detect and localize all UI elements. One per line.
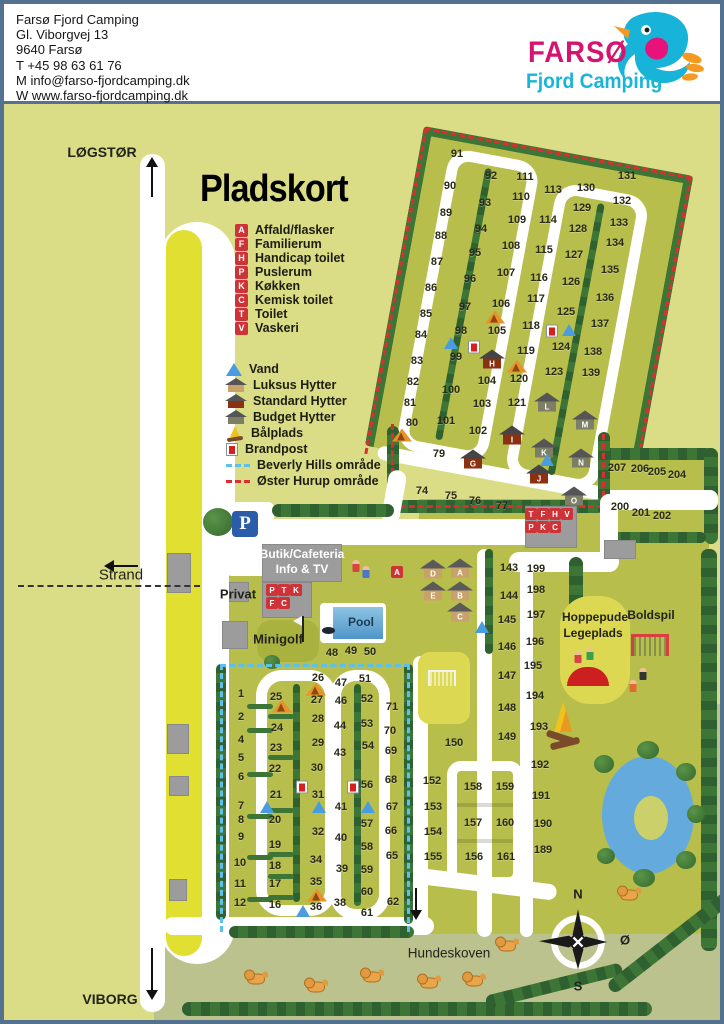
legend-item-T: TToilet (235, 307, 345, 321)
pitch-66: 66 (385, 825, 397, 837)
pitch-34: 34 (310, 854, 322, 866)
pitch-24: 24 (271, 722, 283, 734)
budget-hut-roof-icon (572, 411, 598, 420)
map-title: Pladskort (200, 168, 348, 211)
pitch-128: 128 (569, 223, 587, 235)
pitch-158: 158 (464, 781, 482, 793)
kid-figure (353, 560, 360, 572)
pitch-147: 147 (498, 670, 516, 682)
pitch-138: 138 (584, 346, 602, 358)
hut-letter: B (451, 591, 469, 601)
pitch-28: 28 (312, 713, 324, 725)
pitch-97: 97 (459, 301, 471, 313)
logstor-arrow (146, 157, 158, 197)
standard-hut-roof-icon (479, 350, 505, 359)
pitch-114: 114 (539, 214, 557, 226)
pitch-29: 29 (312, 737, 324, 749)
pitch-136: 136 (596, 292, 614, 304)
legend-label: Kemisk toilet (255, 293, 333, 307)
pitch-117: 117 (527, 293, 545, 305)
pitch-109: 109 (508, 214, 526, 226)
butik-label-line1: Butik/Cafeteria (260, 547, 345, 561)
pitch-23: 23 (270, 742, 282, 754)
compass-south-label: S (574, 979, 583, 994)
pitch-2: 2 (238, 711, 244, 723)
arrow-down-icon (410, 910, 422, 920)
facility-letter-K: K (290, 584, 302, 596)
hut-G: G (461, 450, 485, 469)
pitch-202: 202 (653, 510, 671, 522)
tree-icon (676, 763, 696, 781)
pitch-192: 192 (531, 759, 549, 771)
pitch-118: 118 (522, 320, 540, 332)
pitch-32: 32 (312, 826, 324, 838)
legend-label: Familierum (255, 237, 322, 251)
hut-letter: I (503, 435, 521, 445)
pitch-107: 107 (497, 267, 515, 279)
pitch-67: 67 (386, 801, 398, 813)
pitch-21: 21 (270, 789, 282, 801)
vand-icon (540, 454, 554, 466)
football-goal-icon (428, 670, 456, 686)
football-field (418, 652, 470, 724)
hundeskoven-label: Hundeskoven (408, 946, 491, 961)
whale-icon (322, 627, 335, 634)
pitch-22: 22 (269, 763, 281, 775)
pitch-99: 99 (450, 351, 462, 363)
facility-letter-A: A (391, 566, 403, 578)
vand-icon (444, 337, 458, 349)
minigolf-label: Minigolf (253, 632, 303, 647)
legend-label: Standard Hytter (253, 394, 347, 408)
legend-item-fire: Bålplads (226, 425, 381, 441)
luksus-hut-roof-icon (420, 582, 446, 591)
standard-hut-icon (226, 394, 246, 408)
hedge-stub (247, 704, 273, 709)
budget-hut-roof-icon (561, 487, 587, 496)
legend-item-H: HHandicap toilet (235, 251, 345, 265)
hedge-stub (247, 728, 273, 733)
legend-item-hut-standard: Standard Hytter (226, 393, 381, 409)
header-address-line: Farsø Fjord Camping (16, 12, 190, 27)
pitch-19: 19 (269, 839, 281, 851)
pitch-25: 25 (270, 691, 282, 703)
facility-letter-V: V (561, 508, 573, 520)
legend-item-V: VVaskeri (235, 321, 345, 335)
strip-building (167, 724, 189, 754)
dog-icon (247, 974, 265, 985)
tree-icon (264, 655, 280, 669)
strip-building (169, 776, 189, 796)
facility-letter-T: T (525, 508, 537, 520)
pitch-75: 75 (445, 490, 457, 502)
pitch-82: 82 (407, 376, 419, 388)
hedge-south-1 (229, 926, 414, 938)
pitch-65: 65 (386, 850, 398, 862)
pitch-17: 17 (269, 878, 281, 890)
pitch-134: 134 (606, 237, 624, 249)
pitch-121: 121 (508, 397, 526, 409)
facility-letter-T: T (278, 584, 290, 596)
pitch-31: 31 (312, 789, 324, 801)
privat-label: Privat (220, 587, 256, 602)
pitch-98: 98 (455, 325, 467, 337)
pitch-132: 132 (613, 195, 631, 207)
pitch-47: 47 (335, 677, 347, 689)
pitch-76: 76 (469, 495, 481, 507)
pitch-148: 148 (498, 702, 516, 714)
legend-label: Brandpost (245, 442, 308, 456)
pitch-93: 93 (479, 197, 491, 209)
dog-icon (620, 890, 638, 901)
vand-icon (296, 905, 310, 917)
hut-H: H (480, 350, 504, 369)
legend-item-dash-red: Øster Hurup område (226, 473, 381, 489)
vand-icon (475, 621, 489, 633)
pitch-9: 9 (238, 831, 244, 843)
pitch-5: 5 (238, 752, 244, 764)
hut-I: I (500, 426, 524, 445)
kid-figure (630, 680, 637, 692)
pitch-194: 194 (526, 690, 544, 702)
pitch-77: 77 (496, 500, 508, 512)
pitch-46: 46 (335, 695, 347, 707)
luksus-hut-roof-icon (447, 582, 473, 591)
pitch-116: 116 (530, 272, 548, 284)
facility-letter-C: C (549, 521, 561, 533)
pitch-41: 41 (335, 801, 347, 813)
pitch-56: 56 (361, 779, 373, 791)
facility-letter-C: C (278, 597, 290, 609)
legend-letter-badge: P (235, 266, 248, 279)
strand-arrow (104, 560, 138, 572)
hedge-200s-top (602, 448, 716, 460)
luksus-hut-roof-icon (420, 560, 446, 569)
tree-icon (597, 848, 615, 864)
tree-icon (594, 755, 614, 773)
grid-separator (457, 839, 513, 843)
privat-building-2 (222, 621, 248, 649)
header-address-line: M info@farso-fjordcamping.dk (16, 73, 190, 88)
outbuilding (604, 540, 636, 559)
hut-letter: M (576, 420, 594, 430)
map-canvas: P N Ø S Pladskort LØGSTØR (4, 4, 720, 1020)
pitch-206: 206 (631, 463, 649, 475)
pitch-96: 96 (464, 273, 476, 285)
tent-icon (307, 889, 327, 902)
legend-item-dash-blue: Beverly Hills område (226, 457, 381, 473)
pitch-26: 26 (312, 672, 324, 684)
pitch-95: 95 (469, 247, 481, 259)
hedge-beverly-left (216, 664, 226, 920)
header-address-line: W www.farso-fjordcamping.dk (16, 88, 190, 103)
pitch-152: 152 (423, 775, 441, 787)
pitch-137: 137 (591, 318, 609, 330)
pitch-84: 84 (415, 329, 427, 341)
campsite-map-page: P N Ø S Pladskort LØGSTØR (0, 0, 724, 1024)
pitch-61: 61 (361, 907, 373, 919)
pitch-103: 103 (473, 398, 491, 410)
hut-letter: L (538, 402, 556, 412)
legend-label: Vand (249, 362, 279, 376)
hut-letter: D (424, 569, 442, 579)
hut-letter: G (464, 459, 482, 469)
arrow-up-icon (146, 157, 158, 167)
pitch-144: 144 (500, 590, 518, 602)
pitch-160: 160 (496, 817, 514, 829)
pitch-51: 51 (359, 673, 371, 685)
budget-hut-icon (226, 410, 246, 424)
pitch-71: 71 (386, 701, 398, 713)
pitch-18: 18 (269, 860, 281, 872)
median-strip (166, 230, 202, 956)
hut-letter: A (451, 568, 469, 578)
hedge-hut-column (485, 549, 493, 654)
legend-letter-badge: A (235, 224, 248, 237)
legend-label: Budget Hytter (253, 410, 336, 424)
pitch-161: 161 (497, 851, 515, 863)
header-address-line: Gl. Viborgvej 13 (16, 27, 190, 42)
strip-building (167, 553, 191, 593)
facility-letter-P: P (266, 584, 278, 596)
hedge-stub (268, 852, 294, 857)
pitch-108: 108 (502, 240, 520, 252)
road-label-logstor: LØGSTØR (67, 144, 136, 160)
pool-label: Pool (348, 615, 374, 629)
pitch-7: 7 (238, 800, 244, 812)
vand-icon (562, 324, 576, 336)
pitch-52: 52 (361, 693, 373, 705)
pitch-79: 79 (433, 448, 445, 460)
pitch-146: 146 (498, 641, 516, 653)
kid-figure (575, 651, 582, 663)
pitch-48: 48 (326, 647, 338, 659)
pitch-205: 205 (648, 466, 666, 478)
compass-rose (538, 902, 618, 982)
dog-icon (498, 941, 516, 952)
pitch-10: 10 (234, 857, 246, 869)
hut-E: E (421, 582, 445, 601)
legend-item-A: AAffald/flasker (235, 223, 345, 237)
legend-letter-badge: H (235, 252, 248, 265)
hut-L: L (535, 393, 559, 412)
pitch-101: 101 (437, 415, 455, 427)
blue-dashed-line-icon (226, 464, 250, 467)
pitch-87: 87 (431, 256, 443, 268)
pitch-53: 53 (361, 718, 373, 730)
hut-B: B (448, 582, 472, 601)
pitch-74: 74 (416, 485, 428, 497)
fire-hydrant-icon (226, 443, 238, 456)
butik-label-line2: Info & TV (276, 562, 329, 576)
pitch-115: 115 (535, 244, 553, 256)
hundeskoven-arrow (410, 888, 422, 920)
legend-item-K: KKøkken (235, 279, 345, 293)
luksus-hut-icon (226, 378, 246, 392)
facility-letter-P: P (525, 521, 537, 533)
hoppepude-label-line2: Legeplads (563, 626, 622, 640)
brandpost-icon (546, 325, 558, 338)
pitch-83: 83 (411, 355, 423, 367)
viborg-arrow (146, 948, 158, 1000)
legend-item-C: CKemisk toilet (235, 293, 345, 307)
header-address-line: T +45 98 63 61 76 (16, 58, 190, 73)
pitch-157: 157 (464, 817, 482, 829)
hut-C: C (448, 603, 472, 622)
pitch-36: 36 (310, 901, 322, 913)
pitch-153: 153 (424, 801, 442, 813)
hedge-far-right (701, 549, 717, 951)
pitch-60: 60 (361, 886, 373, 898)
tree-icon (637, 741, 659, 759)
logo-subtitle: Fjord Camping (526, 70, 662, 94)
pitch-123: 123 (545, 366, 563, 378)
legend-label: Luksus Hytter (253, 378, 336, 392)
hedge-south-arc (182, 1002, 652, 1016)
facility-letter-H: H (549, 508, 561, 520)
boldspil-goal-icon (631, 634, 669, 656)
pitch-120: 120 (510, 373, 528, 385)
pitch-27: 27 (311, 694, 323, 706)
vand-icon (361, 801, 375, 813)
pitch-139: 139 (582, 367, 600, 379)
pitch-204: 204 (668, 469, 686, 481)
pitch-135: 135 (601, 264, 619, 276)
pitch-105: 105 (488, 325, 506, 337)
legend-label: Vaskeri (255, 321, 299, 335)
pitch-12: 12 (234, 897, 246, 909)
water-tap-icon (226, 363, 242, 376)
pitch-6: 6 (238, 771, 244, 783)
logo-name: FARSØ (528, 36, 628, 70)
pitch-149: 149 (498, 731, 516, 743)
pitch-126: 126 (562, 276, 580, 288)
pitch-130: 130 (577, 182, 595, 194)
hut-letter: O (565, 496, 583, 506)
pitch-159: 159 (496, 781, 514, 793)
pitch-39: 39 (336, 863, 348, 875)
pitch-92: 92 (485, 170, 497, 182)
pitch-70: 70 (384, 725, 396, 737)
pitch-20: 20 (269, 814, 281, 826)
hut-D: D (421, 560, 445, 579)
pitch-38: 38 (334, 897, 346, 909)
boldspil-label: Boldspil (627, 608, 674, 622)
tree-icon (633, 869, 655, 887)
legend-label: Handicap toilet (255, 251, 345, 265)
hut-letter: N (572, 458, 590, 468)
hoppepude-label-line1: Hoppepude (562, 610, 628, 624)
kid-figure (363, 566, 370, 578)
pitch-62: 62 (387, 896, 399, 908)
strand-path-dashed (18, 585, 200, 587)
pitch-189: 189 (534, 844, 552, 856)
brandpost-icon (296, 781, 308, 794)
legend-item-vand: Vand (226, 361, 381, 377)
pitch-127: 127 (565, 249, 583, 261)
legend-letter-badge: F (235, 238, 248, 251)
hut-letter: J (530, 474, 548, 484)
hedge-butik-north (272, 504, 394, 517)
tent-icon (507, 360, 527, 373)
pitch-110: 110 (512, 191, 530, 203)
dog-icon (420, 978, 438, 989)
hut-O: O (562, 487, 586, 506)
standard-hut-roof-icon (460, 450, 486, 459)
pitch-30: 30 (311, 762, 323, 774)
pitch-199: 199 (527, 563, 545, 575)
legend-letter-badge: V (235, 322, 248, 335)
legend-item-hut-budget: Budget Hytter (226, 409, 381, 425)
pitch-80: 80 (406, 417, 418, 429)
pitch-124: 124 (552, 341, 570, 353)
arrow-down-icon (146, 990, 158, 1000)
tree-icon (203, 508, 233, 536)
pitch-57: 57 (361, 818, 373, 830)
hut-J: J (527, 465, 551, 484)
road-label-viborg: VIBORG (82, 991, 137, 1007)
pitch-102: 102 (469, 425, 487, 437)
pitch-104: 104 (478, 375, 496, 387)
compass-east-label: Ø (620, 933, 630, 948)
pitch-58: 58 (361, 841, 373, 853)
hut-N: N (569, 449, 593, 468)
pitch-1: 1 (238, 688, 244, 700)
pitch-59: 59 (361, 864, 373, 876)
kid-figure (640, 668, 647, 680)
budget-hut-roof-icon (531, 439, 557, 448)
page-header: Farsø Fjord CampingGl. Viborgvej 139640 … (4, 4, 720, 104)
legend-facilities: AAffald/flaskerFFamilierumHHandicap toil… (235, 223, 345, 335)
legend-item-P: PPuslerum (235, 265, 345, 279)
pitch-88: 88 (435, 230, 447, 242)
logo: FARSØ Fjord Camping (510, 6, 710, 100)
pitch-145: 145 (498, 614, 516, 626)
dog-icon (363, 972, 381, 983)
pitch-81: 81 (404, 397, 416, 409)
legend-item-brandpost: Brandpost (226, 441, 381, 457)
pitch-156: 156 (465, 851, 483, 863)
pitch-35: 35 (310, 876, 322, 888)
campfire-icon (226, 426, 244, 441)
pitch-207: 207 (608, 462, 626, 474)
pitch-198: 198 (527, 584, 545, 596)
pitch-68: 68 (385, 774, 397, 786)
pitch-150: 150 (445, 737, 463, 749)
legend-label: Køkken (255, 279, 300, 293)
vand-icon (312, 801, 326, 813)
tent-icon (392, 429, 412, 442)
hedge-beverly-right (404, 664, 413, 924)
legend-label: Bålplads (251, 426, 303, 440)
tent-icon (485, 311, 505, 324)
legend-letter-badge: K (235, 280, 248, 293)
pitch-143: 143 (500, 562, 518, 574)
main-internal-road (252, 519, 567, 545)
pitch-197: 197 (527, 609, 545, 621)
parking-sign: P (232, 511, 258, 537)
kid-figure (587, 648, 594, 660)
legend-label: Affald/flasker (255, 223, 334, 237)
pitch-200: 200 (611, 501, 629, 513)
legend-label: Beverly Hills område (257, 458, 381, 472)
pitch-125: 125 (557, 306, 575, 318)
hedge-stub (268, 714, 294, 719)
pitch-106: 106 (492, 298, 510, 310)
legend-letter-badge: T (235, 308, 248, 321)
pitch-50: 50 (364, 646, 376, 658)
pitch-155: 155 (424, 851, 442, 863)
